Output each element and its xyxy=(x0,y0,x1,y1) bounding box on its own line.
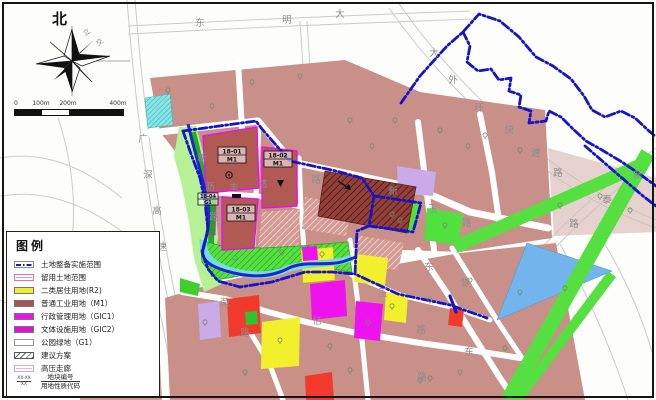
road-label: 东 xyxy=(195,17,205,29)
road-label: 大 xyxy=(335,8,345,20)
legend-item: 二类居住用地(R2) xyxy=(14,284,154,297)
road-label: 外 xyxy=(448,74,458,86)
plot-label-18-01: 18-01M1 xyxy=(218,147,246,163)
legend-item-label: 地块编号用地性质代码 xyxy=(41,374,80,390)
road-label: 玉 xyxy=(378,288,388,299)
road-label: 达 xyxy=(258,178,268,190)
road-label: 路 xyxy=(553,167,563,179)
legend-item-label: 土地整备实施范围 xyxy=(41,261,101,269)
plot-id: 18-02 xyxy=(268,153,287,160)
road-label: 大 xyxy=(429,47,439,59)
plot-id: 18-01 xyxy=(222,149,241,156)
scale-tick: 0 xyxy=(14,100,18,107)
legend-swatch-fill-icon xyxy=(14,313,34,320)
legend-item: 文体设施用地（GIC2） xyxy=(14,323,154,336)
road-label: 路 xyxy=(569,218,579,230)
legend-item-label: 普通工业用地（M1） xyxy=(41,300,112,308)
road-label: 亿 xyxy=(312,315,322,327)
planning-map-page: 东明大大外环快速路新泰路广深高速立交新沥路丰达路新玉路玉路东甘东路荣路亿 18-… xyxy=(0,0,656,400)
road-label: 泰 xyxy=(602,194,612,206)
scale-tick: 200m xyxy=(59,100,76,107)
road-label: 高 xyxy=(152,205,162,217)
legend-item: 普通工业用地（M1） xyxy=(14,297,154,310)
legend-item: 行政管理用地（GIC1） xyxy=(14,310,154,323)
road-label: 路 xyxy=(416,324,426,336)
legend-item-label: 留用土地范围 xyxy=(41,274,86,282)
road-label: 快 xyxy=(504,124,514,136)
road-label: 荣 xyxy=(220,297,230,309)
legend-swatch-hv-icon xyxy=(14,365,34,372)
legend-item: 高压走廊 xyxy=(14,362,154,375)
legend-item-label: 公园绿地（G1） xyxy=(41,339,97,347)
legend-swatch-line-icon xyxy=(14,261,34,268)
road-label: 东 xyxy=(464,346,474,358)
bar-symbol xyxy=(232,194,241,198)
legend-item: 留用土地范围 xyxy=(14,271,154,284)
plot-code: M1 xyxy=(227,156,237,163)
compass-panel: 北 0 100m 200m 400m xyxy=(6,6,132,128)
road-label: 速 xyxy=(531,148,541,159)
road-label: 新 xyxy=(197,152,207,164)
road-label: 路 xyxy=(311,174,321,186)
road-label: 沥 xyxy=(205,182,215,193)
legend: 图例 土地整备实施范围留用土地范围二类居住用地(R2)普通工业用地（M1）行政管… xyxy=(6,231,160,397)
road-label: 路 xyxy=(240,327,250,339)
legend-swatch-fill-icon xyxy=(14,300,34,307)
plot-code: M1 xyxy=(236,214,246,221)
road-label: 新 xyxy=(388,185,398,197)
legend-title: 图例 xyxy=(16,237,154,254)
legend-swatch-fill-icon xyxy=(14,326,34,333)
legend-swatch-hatch-icon xyxy=(14,352,34,359)
legend-swatch-code-icon: XX-XXXX xyxy=(14,376,34,388)
road-label: 明 xyxy=(282,15,292,26)
road-label: 甘 xyxy=(460,277,470,289)
road-label: 玉 xyxy=(428,204,438,215)
compass-rose-icon xyxy=(10,26,134,98)
parcel-magenta xyxy=(310,280,347,320)
plot-code: M1 xyxy=(273,160,283,167)
legend-item-label: 二类居住用地(R2) xyxy=(41,287,102,295)
plot-label-18-02: 18-02M1 xyxy=(264,151,292,167)
legend-item-label: 建议方案 xyxy=(41,352,71,360)
road-label: 广 xyxy=(138,133,148,145)
legend-swatch-fill-icon xyxy=(14,287,34,294)
plot-id: 18-03 xyxy=(231,207,250,214)
plot-code: G1 xyxy=(204,200,212,206)
road-label: 丰 xyxy=(229,182,239,194)
road-label: 路 xyxy=(417,371,427,383)
legend-item: XX-XXXX地块编号用地性质代码 xyxy=(14,375,154,388)
plot-label-18-04: 18-04G1 xyxy=(198,193,218,206)
legend-item-label: 行政管理用地（GIC1） xyxy=(41,313,119,321)
road-label: 新 xyxy=(633,169,643,181)
plot-label-18-03: 18-03M1 xyxy=(227,205,255,221)
scale-tick: 400m xyxy=(109,100,126,107)
road-label: 深 xyxy=(143,170,153,181)
road-label: 路 xyxy=(209,211,219,223)
legend-item: 公园绿地（G1） xyxy=(14,336,154,349)
scale-tick: 100m xyxy=(32,100,49,107)
scale-bar: 0 100m 200m 400m xyxy=(14,100,126,122)
legend-items: 土地整备实施范围留用土地范围二类居住用地(R2)普通工业用地（M1）行政管理用地… xyxy=(14,258,154,388)
parcel-purple xyxy=(198,301,221,340)
road-label: 环 xyxy=(474,103,484,114)
legend-item: 土地整备实施范围 xyxy=(14,258,154,271)
legend-item-label: 高压走廊 xyxy=(41,365,71,373)
legend-swatch-reserve-icon xyxy=(14,274,34,281)
legend-item: 建议方案 xyxy=(14,349,154,362)
scale-bar-graphic xyxy=(14,109,124,116)
road-label: 东 xyxy=(424,261,434,273)
road-label: 路 xyxy=(462,217,472,229)
legend-swatch-outline-icon xyxy=(14,339,34,346)
legend-item-label: 文体设施用地（GIC2） xyxy=(41,326,119,334)
